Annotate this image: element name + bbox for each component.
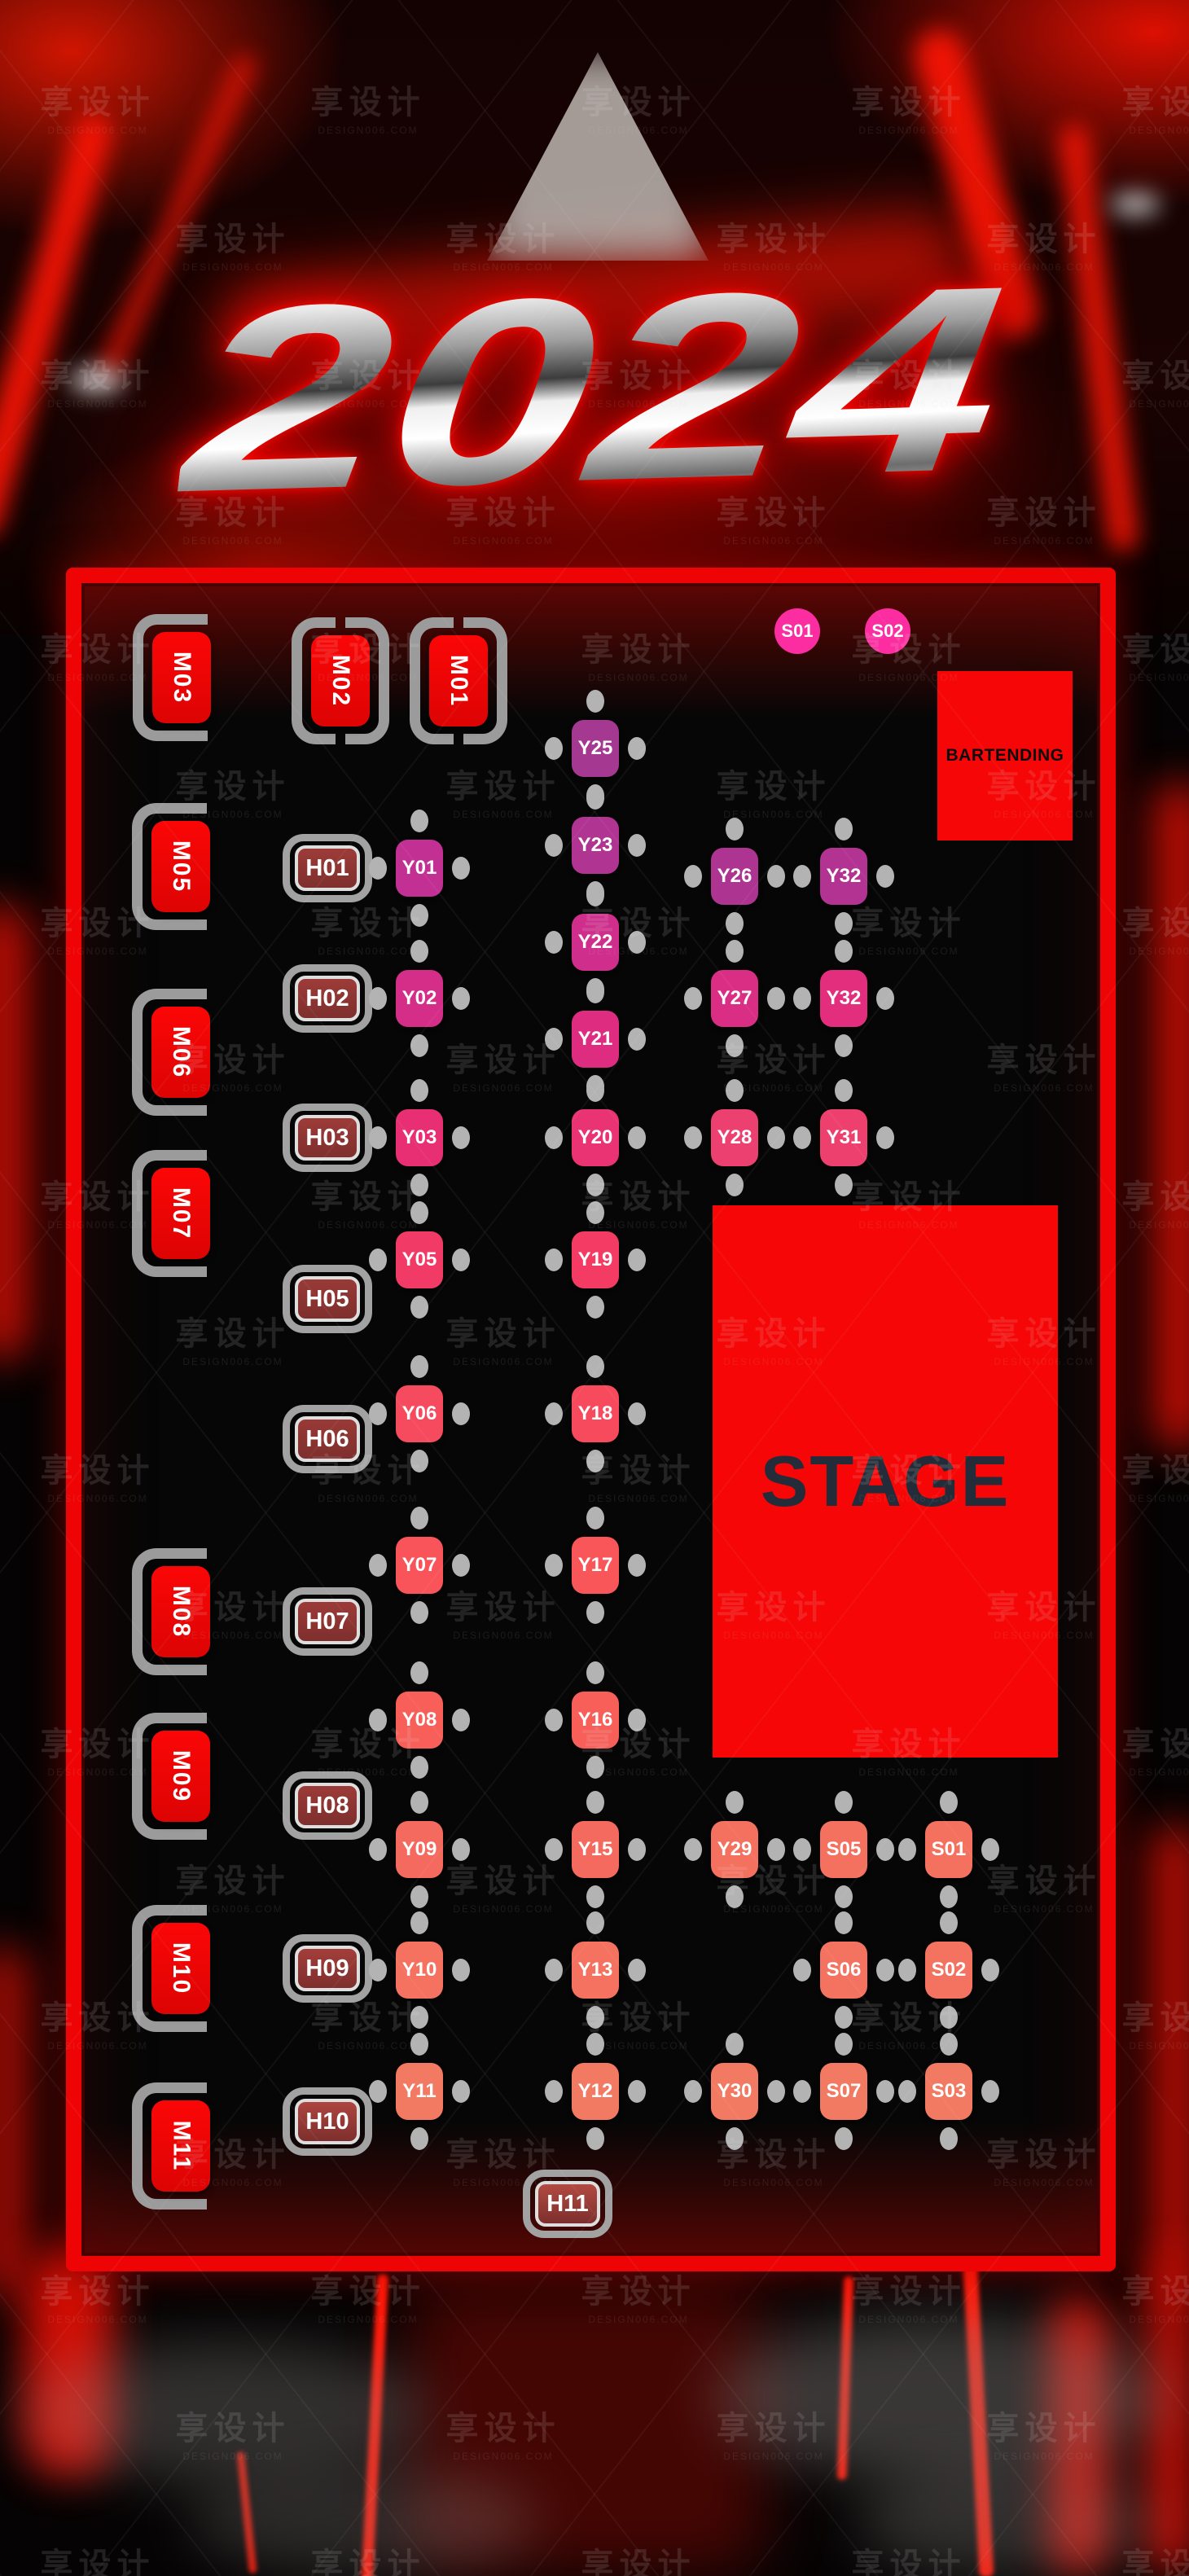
booth-label: M11 [167,2121,195,2172]
seat-dot [876,1126,894,1149]
table-box: Y05 [396,1231,443,1288]
table-Y13[interactable]: Y13 [572,1942,619,1999]
seat-dot [586,787,604,810]
smoke-cloud [857,2468,1158,2574]
seat-dot [452,1838,470,1861]
seat-dot [369,857,387,880]
table-label: Y09 [402,1838,437,1861]
seat-dot [684,1838,702,1861]
seat-dot [369,1959,387,1981]
booth-label: H03 [305,1125,349,1152]
seat-dot [793,1959,811,1981]
seat-dot [726,1885,744,1908]
booth-M06[interactable]: M06 [151,1007,210,1098]
seat-dot [898,2080,916,2103]
seat-dot [684,1126,702,1149]
booth-M08[interactable]: M08 [151,1566,210,1657]
table-Y18[interactable]: Y18 [572,1385,619,1442]
smoke-cloud [189,2468,539,2574]
seat-dot [545,737,563,760]
seat-dot [452,1709,470,1731]
seat-dot [545,1249,563,1271]
seat-dot [369,2080,387,2103]
booth-label: M06 [167,1026,195,1078]
seat-dot [726,1079,744,1102]
table-box: Y11 [396,2063,443,2120]
booth-M02[interactable]: M02 [311,635,370,726]
seat-dot [586,2006,604,2029]
booth-box: M01 [429,635,488,726]
table-label: S03 [932,2080,967,2103]
table-box: Y13 [572,1942,619,1999]
table-label: Y17 [578,1554,613,1577]
seat-dot [940,1885,958,1908]
table-box: Y08 [396,1692,443,1749]
seat-dot [876,987,894,1010]
booth-label: H01 [305,855,349,882]
table-box: Y22 [572,914,619,971]
booth-label: H09 [305,1955,349,1982]
seat-dot [545,931,563,954]
table-box: Y15 [572,1821,619,1878]
table-Y03[interactable]: Y03 [396,1109,443,1166]
table-label: Y10 [402,1959,437,1981]
table-box: Y18 [572,1385,619,1442]
booth-label: M10 [167,1942,195,1995]
stage-label: STAGE [761,1440,1011,1523]
seat-dot [452,2080,470,2103]
seat-dot [628,931,646,954]
booth-box: M08 [151,1566,210,1657]
table-Y05[interactable]: Y05 [396,1231,443,1288]
booth-box: M02 [311,635,370,726]
table-Y17[interactable]: Y17 [572,1537,619,1594]
table-Y21[interactable]: Y21 [572,1011,619,1068]
seat-dot [369,1554,387,1577]
seat-dot [410,1601,428,1624]
watermark-tile: 享设计DESIGN006.COM [0,2539,195,2576]
edge-glow-right [1153,782,1189,1450]
seat-dot [410,1885,428,1908]
seat-dot [726,2033,744,2056]
table-label: Y13 [578,1959,613,1981]
booth-label: M02 [327,655,354,707]
table-Y15[interactable]: Y15 [572,1821,619,1878]
seat-dot [586,1296,604,1319]
table-Y25[interactable]: Y25 [572,720,619,777]
table-label: Y19 [578,1249,613,1271]
table-Y31[interactable]: Y31 [820,1109,867,1166]
table-label: Y06 [402,1402,437,1425]
seat-dot [898,1959,916,1981]
seat-dot [767,2080,785,2103]
seat-dot [586,1601,604,1624]
seat-dot [767,865,785,888]
seat-dot [586,981,604,1003]
booth-box: H10 [295,2099,360,2144]
table-Y32-a[interactable]: Y32 [820,848,867,905]
year-text: 2024 [173,247,1016,533]
table-Y28[interactable]: Y28 [711,1109,758,1166]
seat-dot [586,1756,604,1779]
seat-dot [586,1885,604,1908]
watermark-brand: 享设计 [0,2539,195,2576]
table-box: Y12 [572,2063,619,2120]
table-Y23[interactable]: Y23 [572,817,619,874]
booth-M10[interactable]: M10 [151,1923,210,2014]
seat-dot [767,987,785,1010]
seat-dot [835,940,853,963]
smoke-cloud [23,2342,430,2481]
seat-dot [410,1450,428,1472]
seat-dot [410,1791,428,1814]
seat-dot [410,1661,428,1684]
booth-box: H02 [295,976,360,1021]
seat-dot [410,1355,428,1378]
booth-label: H06 [305,1426,349,1453]
booth-H07[interactable]: H07 [283,1587,372,1656]
seat-dot [940,1911,958,1934]
table-box: S03 [925,2063,972,2120]
seat-dot [628,1249,646,1271]
seat-dot [586,1174,604,1196]
seat-dot [410,1296,428,1319]
table-label: Y26 [717,865,752,888]
table-Y11[interactable]: Y11 [396,2063,443,2120]
seat-dot [628,1028,646,1051]
booth-label: H10 [305,2109,349,2135]
sofa-label: S02 [871,621,903,642]
seat-dot [684,865,702,888]
seat-dot [586,690,604,713]
table-box: Y02 [396,970,443,1027]
seat-dot [410,1201,428,1224]
seat-dot [726,940,744,963]
seat-dot [876,1838,894,1861]
seat-dot [684,2080,702,2103]
table-box: Y30 [711,2063,758,2120]
year-headline: 2024 [0,259,1189,521]
table-label: Y11 [402,2080,436,2103]
seat-dot [369,1838,387,1861]
booth-label: M01 [445,655,472,707]
table-label: Y27 [717,987,752,1010]
table-S07[interactable]: S07 [820,2063,867,2120]
table-box: S06 [820,1942,867,1999]
booth-H09[interactable]: H09 [283,1934,372,2003]
seat-dot [369,987,387,1010]
table-box: S05 [820,1821,867,1878]
table-label: Y02 [402,987,437,1010]
booth-M11[interactable]: M11 [151,2100,210,2192]
table-label: S07 [827,2080,862,2103]
bartending-label: BARTENDING [946,746,1064,766]
seat-dot [586,884,604,906]
booth-box: H01 [295,845,360,891]
table-label: Y28 [717,1126,752,1149]
booth-box: H08 [295,1783,360,1828]
seat-dot [793,865,811,888]
table-box: Y17 [572,1537,619,1594]
seat-dot [835,1911,853,1934]
seat-dot [898,1838,916,1861]
seat-dot [545,1554,563,1577]
booth-box: H06 [295,1416,360,1462]
table-label: Y16 [578,1709,613,1731]
booth-box: M11 [151,2100,210,2192]
seat-dot [835,2006,853,2029]
table-box: Y20 [572,1109,619,1166]
table-box: Y32 [820,970,867,1027]
table-label: Y21 [578,1028,613,1051]
seat-dot [545,834,563,857]
table-box: Y23 [572,817,619,874]
booth-label: M09 [167,1750,195,1802]
table-box: S07 [820,2063,867,2120]
booth-label: H08 [305,1793,349,1819]
seat-dot [545,2080,563,2103]
seat-dot [726,1791,744,1814]
seat-dot [410,940,428,963]
seat-dot [410,1911,428,1934]
table-label: S02 [932,1959,967,1981]
seat-dot [726,2127,744,2150]
seat-dot [452,1402,470,1425]
booth-H01[interactable]: H01 [283,834,372,902]
seat-dot [586,1507,604,1529]
seat-dot [410,1507,428,1529]
booth-box: M03 [152,632,211,723]
table-label: S01 [932,1838,967,1861]
table-box: Y16 [572,1692,619,1749]
table-S02-sq[interactable]: S02 [925,1942,972,1999]
sofa-label: S01 [781,621,813,642]
booth-label: M07 [167,1187,195,1240]
table-label: Y01 [402,857,437,880]
booth-H02[interactable]: H02 [283,964,372,1033]
table-box: Y09 [396,1821,443,1878]
lightning-hotspot [1111,194,1160,215]
table-box: Y31 [820,1109,867,1166]
seat-dot [767,1838,785,1861]
seat-dot [369,1249,387,1271]
table-Y32-b[interactable]: Y32 [820,970,867,1027]
booth-label: H05 [305,1286,349,1313]
booth-box: M10 [151,1923,210,2014]
table-label: Y31 [827,1126,862,1149]
seat-dot [876,865,894,888]
booth-box: H11 [535,2181,600,2227]
table-label: S05 [827,1838,862,1861]
table-label: Y08 [402,1709,437,1731]
booth-box: M06 [151,1007,210,1098]
booth-H11[interactable]: H11 [523,2170,612,2238]
table-label: Y12 [578,2080,613,2103]
table-Y19[interactable]: Y19 [572,1231,619,1288]
seat-dot [628,1959,646,1981]
seat-dot [835,1791,853,1814]
table-Y01[interactable]: Y01 [396,840,443,897]
seat-dot [586,1201,604,1224]
table-box: S02 [925,1942,972,1999]
table-box: Y10 [396,1942,443,1999]
table-label: Y29 [717,1838,752,1861]
seat-dot [452,1554,470,1577]
table-box: Y01 [396,840,443,897]
sofa-S02[interactable]: S02 [865,608,910,654]
booth-box: H09 [295,1946,360,1991]
table-label: Y32 [827,987,862,1010]
seat-dot [586,2127,604,2150]
table-box: Y28 [711,1109,758,1166]
table-Y29[interactable]: Y29 [711,1821,758,1878]
booth-H08[interactable]: H08 [283,1771,372,1840]
edge-glow-left-lower [0,1946,29,2297]
booth-M01[interactable]: M01 [429,635,488,726]
seat-dot [545,1959,563,1981]
seat-dot [452,987,470,1010]
seat-dot [410,1756,428,1779]
booth-H05[interactable]: H05 [283,1265,372,1333]
seat-dot [586,1661,604,1684]
booth-label: H02 [305,985,349,1012]
seat-dot [981,2080,999,2103]
seat-dot [628,1838,646,1861]
seat-dot [835,818,853,840]
seat-dot [452,1959,470,1981]
booth-box: H05 [295,1276,360,1322]
booth-M09[interactable]: M09 [151,1731,210,1822]
seat-dot [981,1838,999,1861]
table-label: Y22 [578,931,613,954]
table-Y06[interactable]: Y06 [396,1385,443,1442]
seat-dot [369,1709,387,1731]
stage-block: STAGE [713,1205,1058,1758]
booth-label: M03 [168,652,195,704]
seat-dot [726,912,744,935]
seat-dot [410,1174,428,1196]
booth-box: M07 [151,1168,210,1259]
seat-dot [726,1034,744,1057]
seat-dot [726,1174,744,1196]
seat-dot [876,1959,894,1981]
seat-dot [410,2006,428,2029]
seat-dot [835,2033,853,2056]
table-box: Y27 [711,970,758,1027]
seat-dot [545,1709,563,1731]
table-S05[interactable]: S05 [820,1821,867,1878]
table-box: Y32 [820,848,867,905]
table-box: Y06 [396,1385,443,1442]
table-S01-sq[interactable]: S01 [925,1821,972,1878]
seat-dot [410,904,428,927]
table-Y20[interactable]: Y20 [572,1109,619,1166]
table-Y12[interactable]: Y12 [572,2063,619,2120]
seat-dot [410,1079,428,1102]
seat-dot [876,2080,894,2103]
seat-dot [835,1174,853,1196]
table-box: Y19 [572,1231,619,1288]
sofa-S01[interactable]: S01 [774,608,820,654]
table-label: Y05 [402,1249,437,1271]
booth-label: M05 [167,840,195,893]
seat-dot [793,1126,811,1149]
seat-dot [628,1126,646,1149]
table-Y07[interactable]: Y07 [396,1537,443,1594]
table-S03[interactable]: S03 [925,2063,972,2120]
table-box: Y26 [711,848,758,905]
table-Y08[interactable]: Y08 [396,1692,443,1749]
booth-H03[interactable]: H03 [283,1104,372,1172]
table-box: Y07 [396,1537,443,1594]
seat-dot [452,857,470,880]
table-label: Y30 [717,2080,752,2103]
bartending-block: BARTENDING [937,671,1073,840]
seat-dot [628,2080,646,2103]
table-Y02[interactable]: Y02 [396,970,443,1027]
booth-M03[interactable]: M03 [152,632,211,723]
table-S06[interactable]: S06 [820,1942,867,1999]
booth-H06[interactable]: H06 [283,1405,372,1473]
booth-M05[interactable]: M05 [151,821,210,912]
booth-box: H07 [295,1599,360,1644]
seat-dot [628,1402,646,1425]
table-Y16[interactable]: Y16 [572,1692,619,1749]
seat-dot [835,2127,853,2150]
booth-label: H11 [546,2191,589,2218]
booth-box: H03 [295,1115,360,1161]
table-Y22[interactable]: Y22 [572,914,619,971]
table-box: Y03 [396,1109,443,1166]
table-label: Y07 [402,1554,437,1577]
table-Y30[interactable]: Y30 [711,2063,758,2120]
seat-dot [981,1959,999,1981]
table-label: Y15 [578,1838,613,1861]
table-box: Y21 [572,1011,619,1068]
seat-dot [545,1838,563,1861]
seat-dot [793,2080,811,2103]
booth-label: M08 [167,1586,195,1638]
seat-dot [726,818,744,840]
table-label: S06 [827,1959,862,1981]
table-Y09[interactable]: Y09 [396,1821,443,1878]
poster-canvas: 2024 STAGE BARTENDING M03M02M01M05M06M07… [0,0,1189,2576]
seat-dot [628,1554,646,1577]
booth-H10[interactable]: H10 [283,2087,372,2156]
table-Y27[interactable]: Y27 [711,970,758,1027]
seat-dot [628,1709,646,1731]
seat-dot [452,1249,470,1271]
smoke-cloud [713,2316,1169,2479]
seat-dot [628,834,646,857]
seat-dot [586,1450,604,1472]
table-label: Y25 [578,737,613,760]
edge-glow-left [0,904,31,1360]
seat-dot [586,1355,604,1378]
seat-dot [586,1079,604,1102]
seat-dot [940,2006,958,2029]
seat-dot [410,1034,428,1057]
table-Y26[interactable]: Y26 [711,848,758,905]
table-Y10[interactable]: Y10 [396,1942,443,1999]
booth-label: H07 [305,1608,349,1635]
booth-M07[interactable]: M07 [151,1168,210,1259]
seat-dot [586,2033,604,2056]
seat-dot [586,1911,604,1934]
table-label: Y18 [578,1402,613,1425]
seat-dot [410,810,428,832]
table-label: Y20 [578,1126,613,1149]
